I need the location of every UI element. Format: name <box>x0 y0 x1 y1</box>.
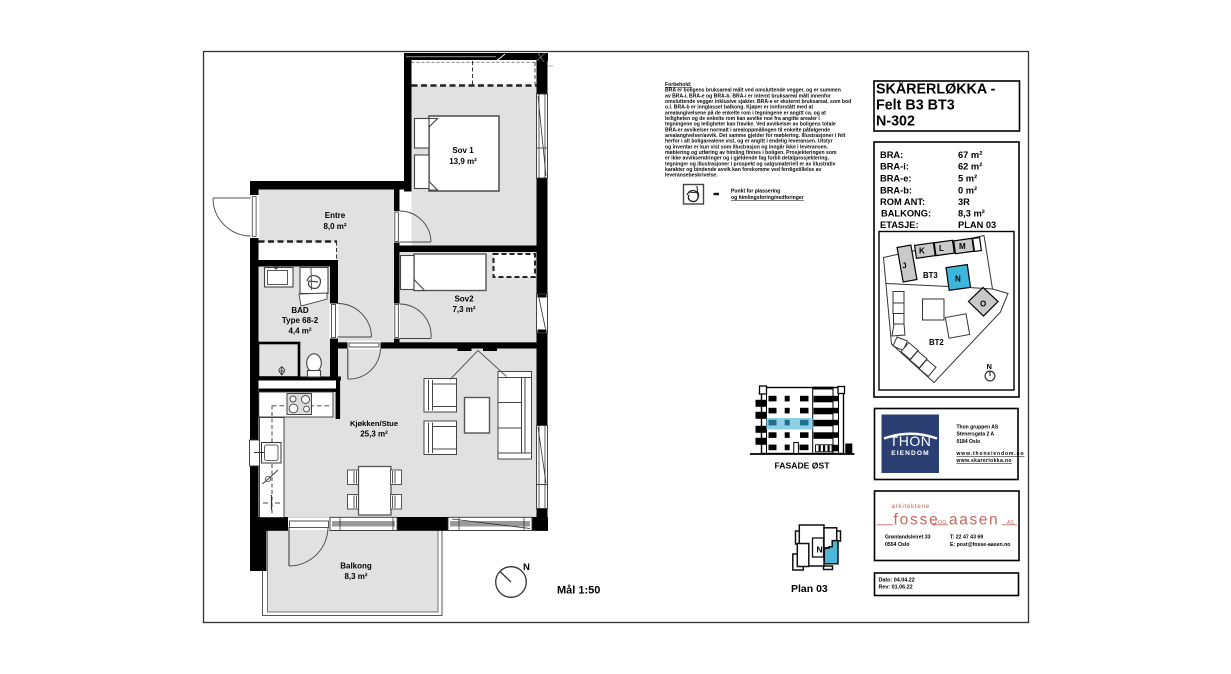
svg-text:O: O <box>980 300 986 309</box>
svg-text:BRA-b:: BRA-b: <box>880 186 912 196</box>
svg-text:3R: 3R <box>958 197 970 207</box>
svg-text:Punkt for plassering: Punkt for plassering <box>731 189 780 195</box>
svg-text:25,3 m²: 25,3 m² <box>360 430 388 439</box>
svg-text:SKÅRERLØKKA -: SKÅRERLØKKA - <box>876 81 996 98</box>
svg-text:BRA-i:: BRA-i: <box>880 162 909 172</box>
svg-text:Grønlandsleiret 33: Grønlandsleiret 33 <box>885 535 931 541</box>
svg-text:N-302: N-302 <box>876 114 915 130</box>
svg-text:0184 Oslo: 0184 Oslo <box>957 439 981 445</box>
svg-text:www.thoneiendom.no: www.thoneiendom.no <box>956 451 1025 457</box>
svg-text:Mål 1:50: Mål 1:50 <box>557 585 600 597</box>
svg-text:ETASJE:: ETASJE: <box>880 220 919 230</box>
svg-text:K: K <box>919 247 925 256</box>
svg-text:Felt B3 BT3: Felt B3 BT3 <box>876 98 955 114</box>
svg-text:BAD: BAD <box>291 306 309 315</box>
svg-text:0554 Oslo: 0554 Oslo <box>885 542 910 548</box>
svg-text:BALKONG:: BALKONG: <box>881 209 931 219</box>
svg-text:8,3 m²: 8,3 m² <box>344 572 367 581</box>
svg-text:THON: THON <box>890 433 932 449</box>
svg-text:Entre: Entre <box>325 211 346 220</box>
svg-text:ROM ANT:: ROM ANT: <box>880 197 925 207</box>
svg-text:aasen: aasen <box>949 512 999 529</box>
svg-text:N: N <box>955 275 961 284</box>
svg-text:8,3 m²: 8,3 m² <box>958 209 985 219</box>
svg-text:arkitektene: arkitektene <box>892 503 930 510</box>
svg-text:Sov2: Sov2 <box>454 295 474 304</box>
svg-text:www.skarerlokka.no: www.skarerlokka.no <box>956 458 1012 464</box>
svg-text:PLAN 03: PLAN 03 <box>958 220 996 230</box>
svg-text:leveransebeskrivelse.: leveransebeskrivelse. <box>665 173 718 179</box>
svg-text:Kjøkken/Stue: Kjøkken/Stue <box>350 419 398 428</box>
svg-text:5 m²: 5 m² <box>958 174 977 184</box>
svg-text:Rev: 01.06.22: Rev: 01.06.22 <box>879 585 913 591</box>
svg-text:L: L <box>939 244 944 253</box>
svg-text:T: 22 47 43 69: T: 22 47 43 69 <box>950 535 983 541</box>
svg-text:Thon gruppen AS: Thon gruppen AS <box>957 425 999 431</box>
svg-text:fosse: fosse <box>894 512 940 529</box>
svg-text:og himlingsforing/nedforinger: og himlingsforing/nedforinger <box>731 195 804 201</box>
svg-text:BT3: BT3 <box>923 271 938 280</box>
svg-text:Plan 03: Plan 03 <box>791 583 828 595</box>
svg-text:Sov 1: Sov 1 <box>452 146 474 155</box>
svg-text:M: M <box>959 242 966 251</box>
svg-text:N: N <box>987 362 992 371</box>
svg-text:13,9 m²: 13,9 m² <box>449 157 477 166</box>
svg-text:0 m²: 0 m² <box>958 186 977 196</box>
svg-text:N: N <box>817 545 823 555</box>
svg-text:N: N <box>523 562 530 573</box>
svg-text:BRA:: BRA: <box>880 150 903 160</box>
svg-text:BRA-e:: BRA-e: <box>880 174 912 184</box>
svg-text:4,4 m²: 4,4 m² <box>288 327 311 336</box>
svg-text:E: post@fosse-aasen.no: E: post@fosse-aasen.no <box>950 542 1010 548</box>
svg-text:Stenersgata 2 A: Stenersgata 2 A <box>957 432 995 438</box>
svg-text:Balkong: Balkong <box>340 562 372 571</box>
svg-text:7,3 m²: 7,3 m² <box>452 305 475 314</box>
svg-text:8,0 m²: 8,0 m² <box>323 222 346 231</box>
svg-text:Type 68-2: Type 68-2 <box>282 316 319 325</box>
svg-text:FASADE ØST: FASADE ØST <box>775 461 831 471</box>
svg-text:BT2: BT2 <box>929 338 944 347</box>
svg-text:Dato: 04.04.22: Dato: 04.04.22 <box>879 578 915 584</box>
svg-text:EIENDOM: EIENDOM <box>891 450 929 457</box>
svg-text:62 m²: 62 m² <box>958 162 982 172</box>
svg-text:67 m²: 67 m² <box>958 150 982 160</box>
